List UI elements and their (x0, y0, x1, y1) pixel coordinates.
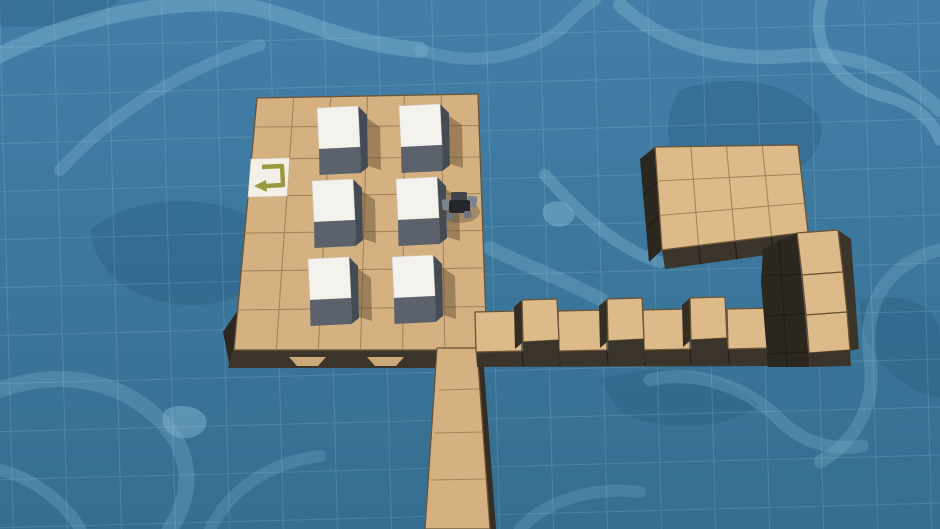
raised-block-south-face (523, 340, 560, 365)
raised-block-south-face (608, 339, 645, 364)
cube-front-face (398, 218, 440, 246)
cube-top-face[interactable] (399, 104, 442, 147)
cube-front-face (314, 220, 356, 248)
wall-south-face (809, 350, 851, 367)
wall-step-top[interactable] (806, 312, 850, 353)
cube-front-face (319, 147, 361, 175)
player-foot-right (464, 211, 472, 218)
cube-front-face (310, 298, 352, 326)
cube-top-face[interactable] (396, 177, 439, 220)
cube-front-face (394, 296, 436, 324)
wall-step-top[interactable] (802, 272, 847, 315)
player-head (451, 192, 467, 201)
cube-front-face (401, 145, 443, 173)
game-viewport: Isometric block-puzzle level floating on… (0, 0, 940, 529)
raised-block-south-face (691, 338, 728, 363)
cube-top-face[interactable] (317, 106, 360, 149)
raised-block-top[interactable] (522, 299, 559, 342)
undo-button-tile[interactable] (248, 158, 290, 197)
game-scene: Isometric block-puzzle level floating on… (0, 0, 940, 529)
cube-top-face[interactable] (312, 179, 355, 222)
main-platform (223, 94, 487, 368)
cube-top-face[interactable] (392, 255, 435, 298)
player-foot-left (447, 213, 455, 220)
raised-block-top[interactable] (690, 297, 727, 340)
cube-top-face[interactable] (308, 257, 351, 300)
descending-wall (761, 230, 859, 367)
raised-block-top[interactable] (607, 298, 644, 341)
wall-step-top[interactable] (797, 230, 843, 275)
